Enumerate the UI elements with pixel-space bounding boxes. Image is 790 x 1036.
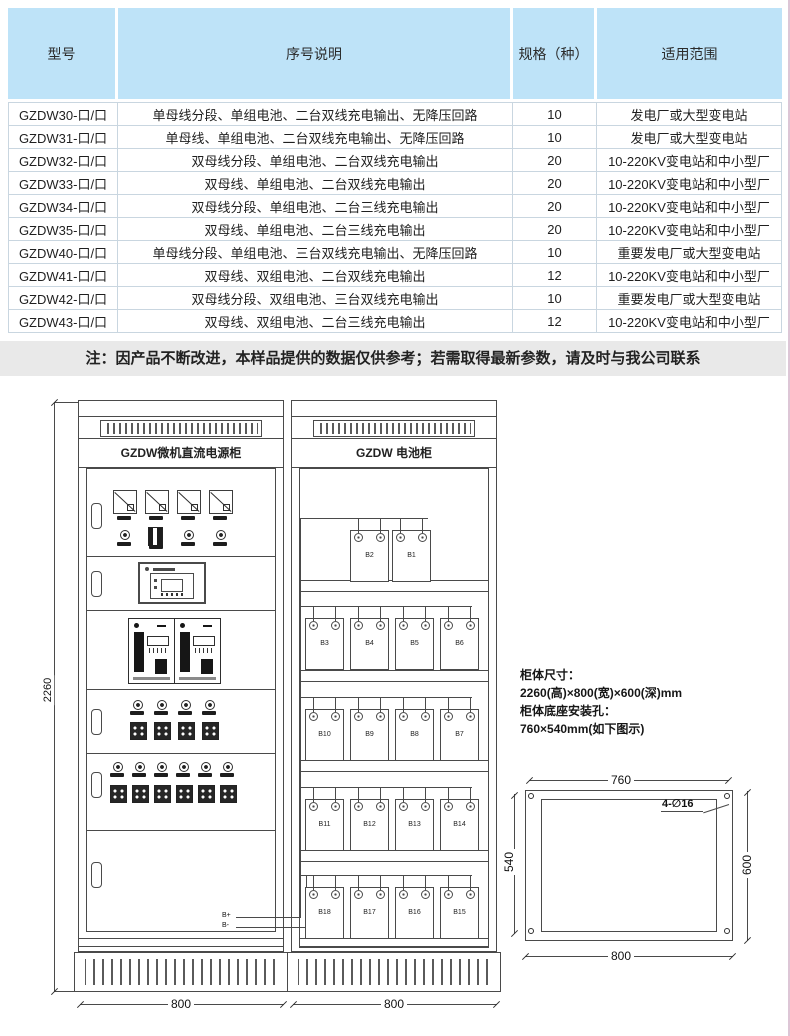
shelf-line — [300, 670, 488, 671]
hole-callout: 4-∅16 — [662, 797, 693, 810]
label-plate — [178, 711, 192, 715]
dim-label-hole-width: 760 — [608, 773, 634, 787]
label-plate — [149, 516, 163, 520]
battery-label: B4 — [351, 640, 388, 647]
indicator-lamp — [135, 762, 145, 772]
indicator-lamp — [216, 530, 226, 540]
battery-terminal — [444, 890, 453, 899]
panel-divider — [87, 610, 275, 611]
label-plate — [117, 542, 131, 546]
monitor-led — [145, 567, 149, 571]
battery-terminal — [376, 533, 385, 542]
battery-label: B9 — [351, 731, 388, 738]
battery-terminal — [309, 712, 318, 721]
module-knob — [134, 623, 139, 628]
battery-terminal — [331, 890, 340, 899]
module-knob — [180, 623, 185, 628]
indicator-lamp — [120, 530, 130, 540]
monitor-keys — [161, 593, 185, 596]
circuit-breaker — [198, 785, 215, 803]
module-footer — [179, 677, 216, 680]
battery-label: B5 — [396, 640, 433, 647]
module-leds — [149, 648, 169, 653]
specs-line-base-dims: 760×540mm(如下图示) — [520, 720, 644, 737]
battery-terminal — [466, 890, 475, 899]
door-handle — [91, 862, 102, 888]
module-display — [147, 636, 169, 646]
panel-divider — [87, 556, 275, 557]
monitor-panel — [150, 573, 194, 599]
shelf-line — [300, 946, 488, 947]
battery-label: B1 — [393, 552, 430, 559]
battery-label: B17 — [351, 909, 388, 916]
label-plate — [176, 773, 190, 777]
battery-terminal — [399, 712, 408, 721]
indicator-lamp — [205, 700, 215, 710]
wire-line — [300, 518, 428, 519]
cabinet-plinth — [287, 952, 501, 992]
battery-label: B11 — [306, 821, 343, 828]
battery: B16 — [395, 887, 434, 939]
datasheet-page: 型号 序号说明 规格（种） 适用范围 GZDW30-口/口单母线分段、单组电池、… — [0, 0, 790, 1036]
mounting-hole — [528, 793, 534, 799]
battery-terminal — [421, 621, 430, 630]
label-plate — [181, 516, 195, 520]
battery: B18 — [305, 887, 344, 939]
module-heatsink — [180, 632, 190, 672]
specs-line-dimensions: 2260(高)×800(宽)×600(深)mm — [520, 684, 682, 701]
battery-cabinet-title: GZDW 电池柜 — [291, 439, 497, 467]
battery-terminal — [354, 533, 363, 542]
indicator-lamp — [223, 762, 233, 772]
battery-terminal — [396, 533, 405, 542]
charger-module — [174, 618, 221, 684]
circuit-breaker — [154, 722, 171, 740]
battery-terminal — [421, 890, 430, 899]
wire-label-negative: B- — [222, 922, 229, 929]
mounting-hole — [724, 793, 730, 799]
dim-tick — [493, 1001, 500, 1008]
battery-terminal — [354, 890, 363, 899]
wire-line — [300, 518, 301, 918]
battery-terminal — [399, 621, 408, 630]
battery-terminal — [331, 712, 340, 721]
battery-terminal — [466, 712, 475, 721]
battery-label: B18 — [306, 909, 343, 916]
battery: B10 — [305, 709, 344, 761]
indicator-lamp — [181, 700, 191, 710]
dim-tick — [744, 937, 751, 944]
label-plate — [130, 711, 144, 715]
battery-terminal — [376, 802, 385, 811]
panel-divider — [87, 689, 275, 690]
analog-meter — [145, 490, 169, 514]
battery-label: B16 — [396, 909, 433, 916]
circuit-breaker — [132, 785, 149, 803]
indicator-lamp — [201, 762, 211, 772]
battery-label: B14 — [441, 821, 478, 828]
circuit-breaker — [176, 785, 193, 803]
rocker-switch — [148, 527, 163, 546]
battery-terminal — [376, 890, 385, 899]
circuit-breaker — [202, 722, 219, 740]
battery-terminal — [331, 802, 340, 811]
battery-terminal — [421, 712, 430, 721]
battery: B4 — [350, 618, 389, 670]
cabinet-line — [78, 416, 284, 417]
circuit-breaker — [110, 785, 127, 803]
circuit-breaker — [154, 785, 171, 803]
wire-line — [300, 875, 472, 876]
shelf-line — [300, 681, 488, 682]
monitor-unit — [138, 562, 206, 604]
monitor-key — [154, 579, 157, 582]
battery-terminal — [399, 802, 408, 811]
battery-terminal — [354, 621, 363, 630]
dim-tick — [729, 953, 736, 960]
battery-terminal — [309, 802, 318, 811]
shelf-line — [300, 861, 488, 862]
label-plate — [132, 773, 146, 777]
module-footer — [133, 677, 170, 680]
dim-label-cabinet-height: 2260 — [42, 675, 54, 705]
wire-label-positive: B+ — [222, 912, 231, 919]
module-heatsink — [134, 632, 144, 672]
vent-grille — [313, 420, 475, 437]
battery-terminal — [376, 621, 385, 630]
module-dash — [203, 625, 212, 627]
battery: B9 — [350, 709, 389, 761]
battery-terminal — [444, 802, 453, 811]
label-plate — [198, 773, 212, 777]
dim-label-hole-depth: 540 — [502, 849, 516, 875]
battery: B11 — [305, 799, 344, 851]
dim-label-base-depth: 600 — [740, 852, 754, 878]
door-handle — [91, 772, 102, 798]
indicator-lamp — [179, 762, 189, 772]
specs-line-title: 柜体尺寸： — [520, 666, 580, 683]
label-plate — [149, 545, 163, 549]
shelf-line — [300, 591, 488, 592]
power-cabinet-door — [86, 468, 276, 932]
battery: B1 — [392, 530, 431, 582]
dim-tick — [511, 930, 518, 937]
label-plate — [220, 773, 234, 777]
label-plate — [213, 542, 227, 546]
door-handle — [91, 709, 102, 735]
battery: B7 — [440, 709, 479, 761]
battery-label: B10 — [306, 731, 343, 738]
technical-drawing: 2260 GZDW微机直流电源柜 — [0, 0, 790, 1036]
battery: B2 — [350, 530, 389, 582]
analog-meter — [113, 490, 137, 514]
circuit-breaker — [220, 785, 237, 803]
battery-terminal — [421, 802, 430, 811]
battery-label: B13 — [396, 821, 433, 828]
battery-label: B8 — [396, 731, 433, 738]
battery-label: B6 — [441, 640, 478, 647]
mounting-hole — [724, 928, 730, 934]
battery: B8 — [395, 709, 434, 761]
base-plan-inner — [541, 799, 717, 932]
indicator-lamp — [157, 762, 167, 772]
battery: B13 — [395, 799, 434, 851]
battery-label: B12 — [351, 821, 388, 828]
dim-label-battery-width: 800 — [381, 997, 407, 1011]
battery-label: B15 — [441, 909, 478, 916]
dim-extension-line — [54, 991, 74, 992]
indicator-lamp — [113, 762, 123, 772]
battery-terminal — [444, 621, 453, 630]
battery: B3 — [305, 618, 344, 670]
module-switch — [201, 659, 213, 674]
battery-terminal — [354, 712, 363, 721]
battery-label: B2 — [351, 552, 388, 559]
label-plate — [213, 516, 227, 520]
door-handle — [91, 571, 102, 597]
dim-label-power-width: 800 — [168, 997, 194, 1011]
cabinet-line — [79, 938, 283, 939]
battery-terminal — [331, 621, 340, 630]
monitor-screen — [161, 579, 183, 592]
dim-tick — [725, 777, 732, 784]
wire-line — [300, 697, 472, 698]
wire-line — [300, 787, 472, 788]
battery: B6 — [440, 618, 479, 670]
module-switch — [155, 659, 167, 674]
specs-line-base-title: 柜体底座安装孔： — [520, 702, 616, 719]
charger-module — [128, 618, 175, 684]
label-plate — [154, 773, 168, 777]
cabinet-line — [291, 416, 497, 417]
battery-terminal — [309, 890, 318, 899]
battery: B5 — [395, 618, 434, 670]
module-dash — [157, 625, 166, 627]
battery-terminal — [309, 621, 318, 630]
circuit-breaker — [130, 722, 147, 740]
cabinet-line — [79, 946, 283, 947]
shelf-line — [300, 771, 488, 772]
battery-terminal — [418, 533, 427, 542]
indicator-lamp — [184, 530, 194, 540]
dim-label-base-width: 800 — [608, 949, 634, 963]
battery-terminal — [466, 802, 475, 811]
cabinet-plinth — [74, 952, 288, 992]
battery: B14 — [440, 799, 479, 851]
battery-terminal — [466, 621, 475, 630]
label-plate — [117, 516, 131, 520]
indicator-lamp — [133, 700, 143, 710]
label-plate — [154, 711, 168, 715]
battery: B17 — [350, 887, 389, 939]
battery-terminal — [354, 802, 363, 811]
panel-divider — [87, 753, 275, 754]
monitor-strip — [153, 568, 175, 571]
label-plate — [181, 542, 195, 546]
circuit-breaker — [178, 722, 195, 740]
battery-terminal — [376, 712, 385, 721]
dim-extension-line — [54, 402, 78, 403]
module-leds — [195, 648, 215, 653]
battery: B15 — [440, 887, 479, 939]
analog-meter — [177, 490, 201, 514]
panel-divider — [87, 830, 275, 831]
battery-terminal — [444, 712, 453, 721]
battery-label: B7 — [441, 731, 478, 738]
label-plate — [202, 711, 216, 715]
battery: B12 — [350, 799, 389, 851]
monitor-key — [154, 586, 157, 589]
analog-meter — [209, 490, 233, 514]
mounting-hole — [528, 928, 534, 934]
power-cabinet-title: GZDW微机直流电源柜 — [78, 439, 284, 467]
wire-line — [300, 606, 472, 607]
label-plate — [110, 773, 124, 777]
vent-grille — [100, 420, 262, 437]
battery-label: B3 — [306, 640, 343, 647]
dim-tick — [280, 1001, 287, 1008]
indicator-lamp — [157, 700, 167, 710]
door-handle — [91, 503, 102, 529]
callout-leader-line — [661, 811, 703, 812]
module-display — [193, 636, 215, 646]
battery-terminal — [399, 890, 408, 899]
